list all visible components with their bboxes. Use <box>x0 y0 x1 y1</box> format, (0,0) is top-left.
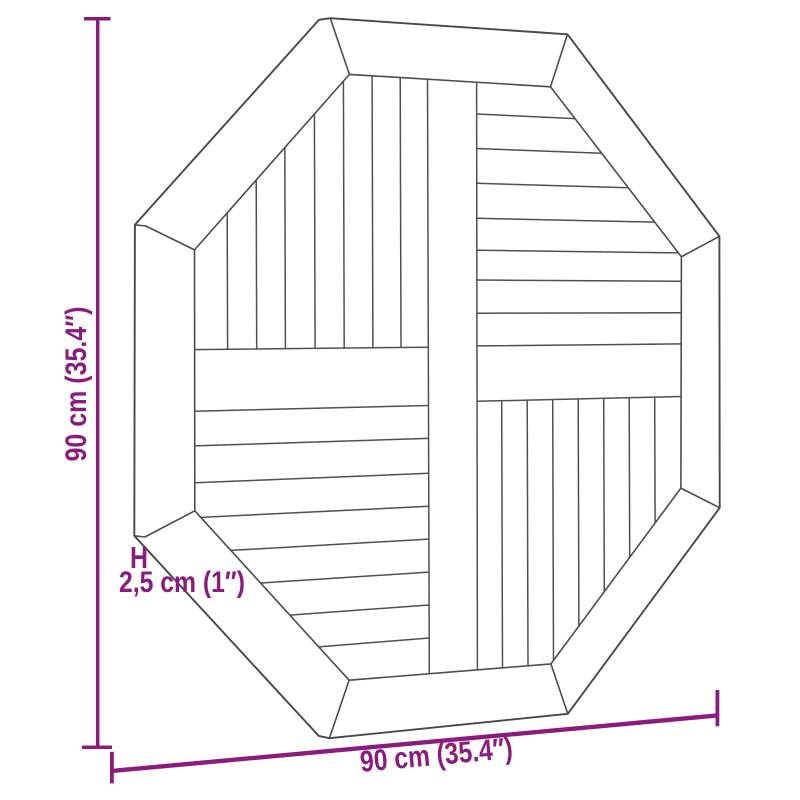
svg-text:90 cm (35.4″): 90 cm (35.4″) <box>359 732 514 779</box>
svg-text:90 cm (35.4″): 90 cm (35.4″) <box>60 307 93 462</box>
svg-text:2,5 cm (1″): 2,5 cm (1″) <box>119 566 245 599</box>
